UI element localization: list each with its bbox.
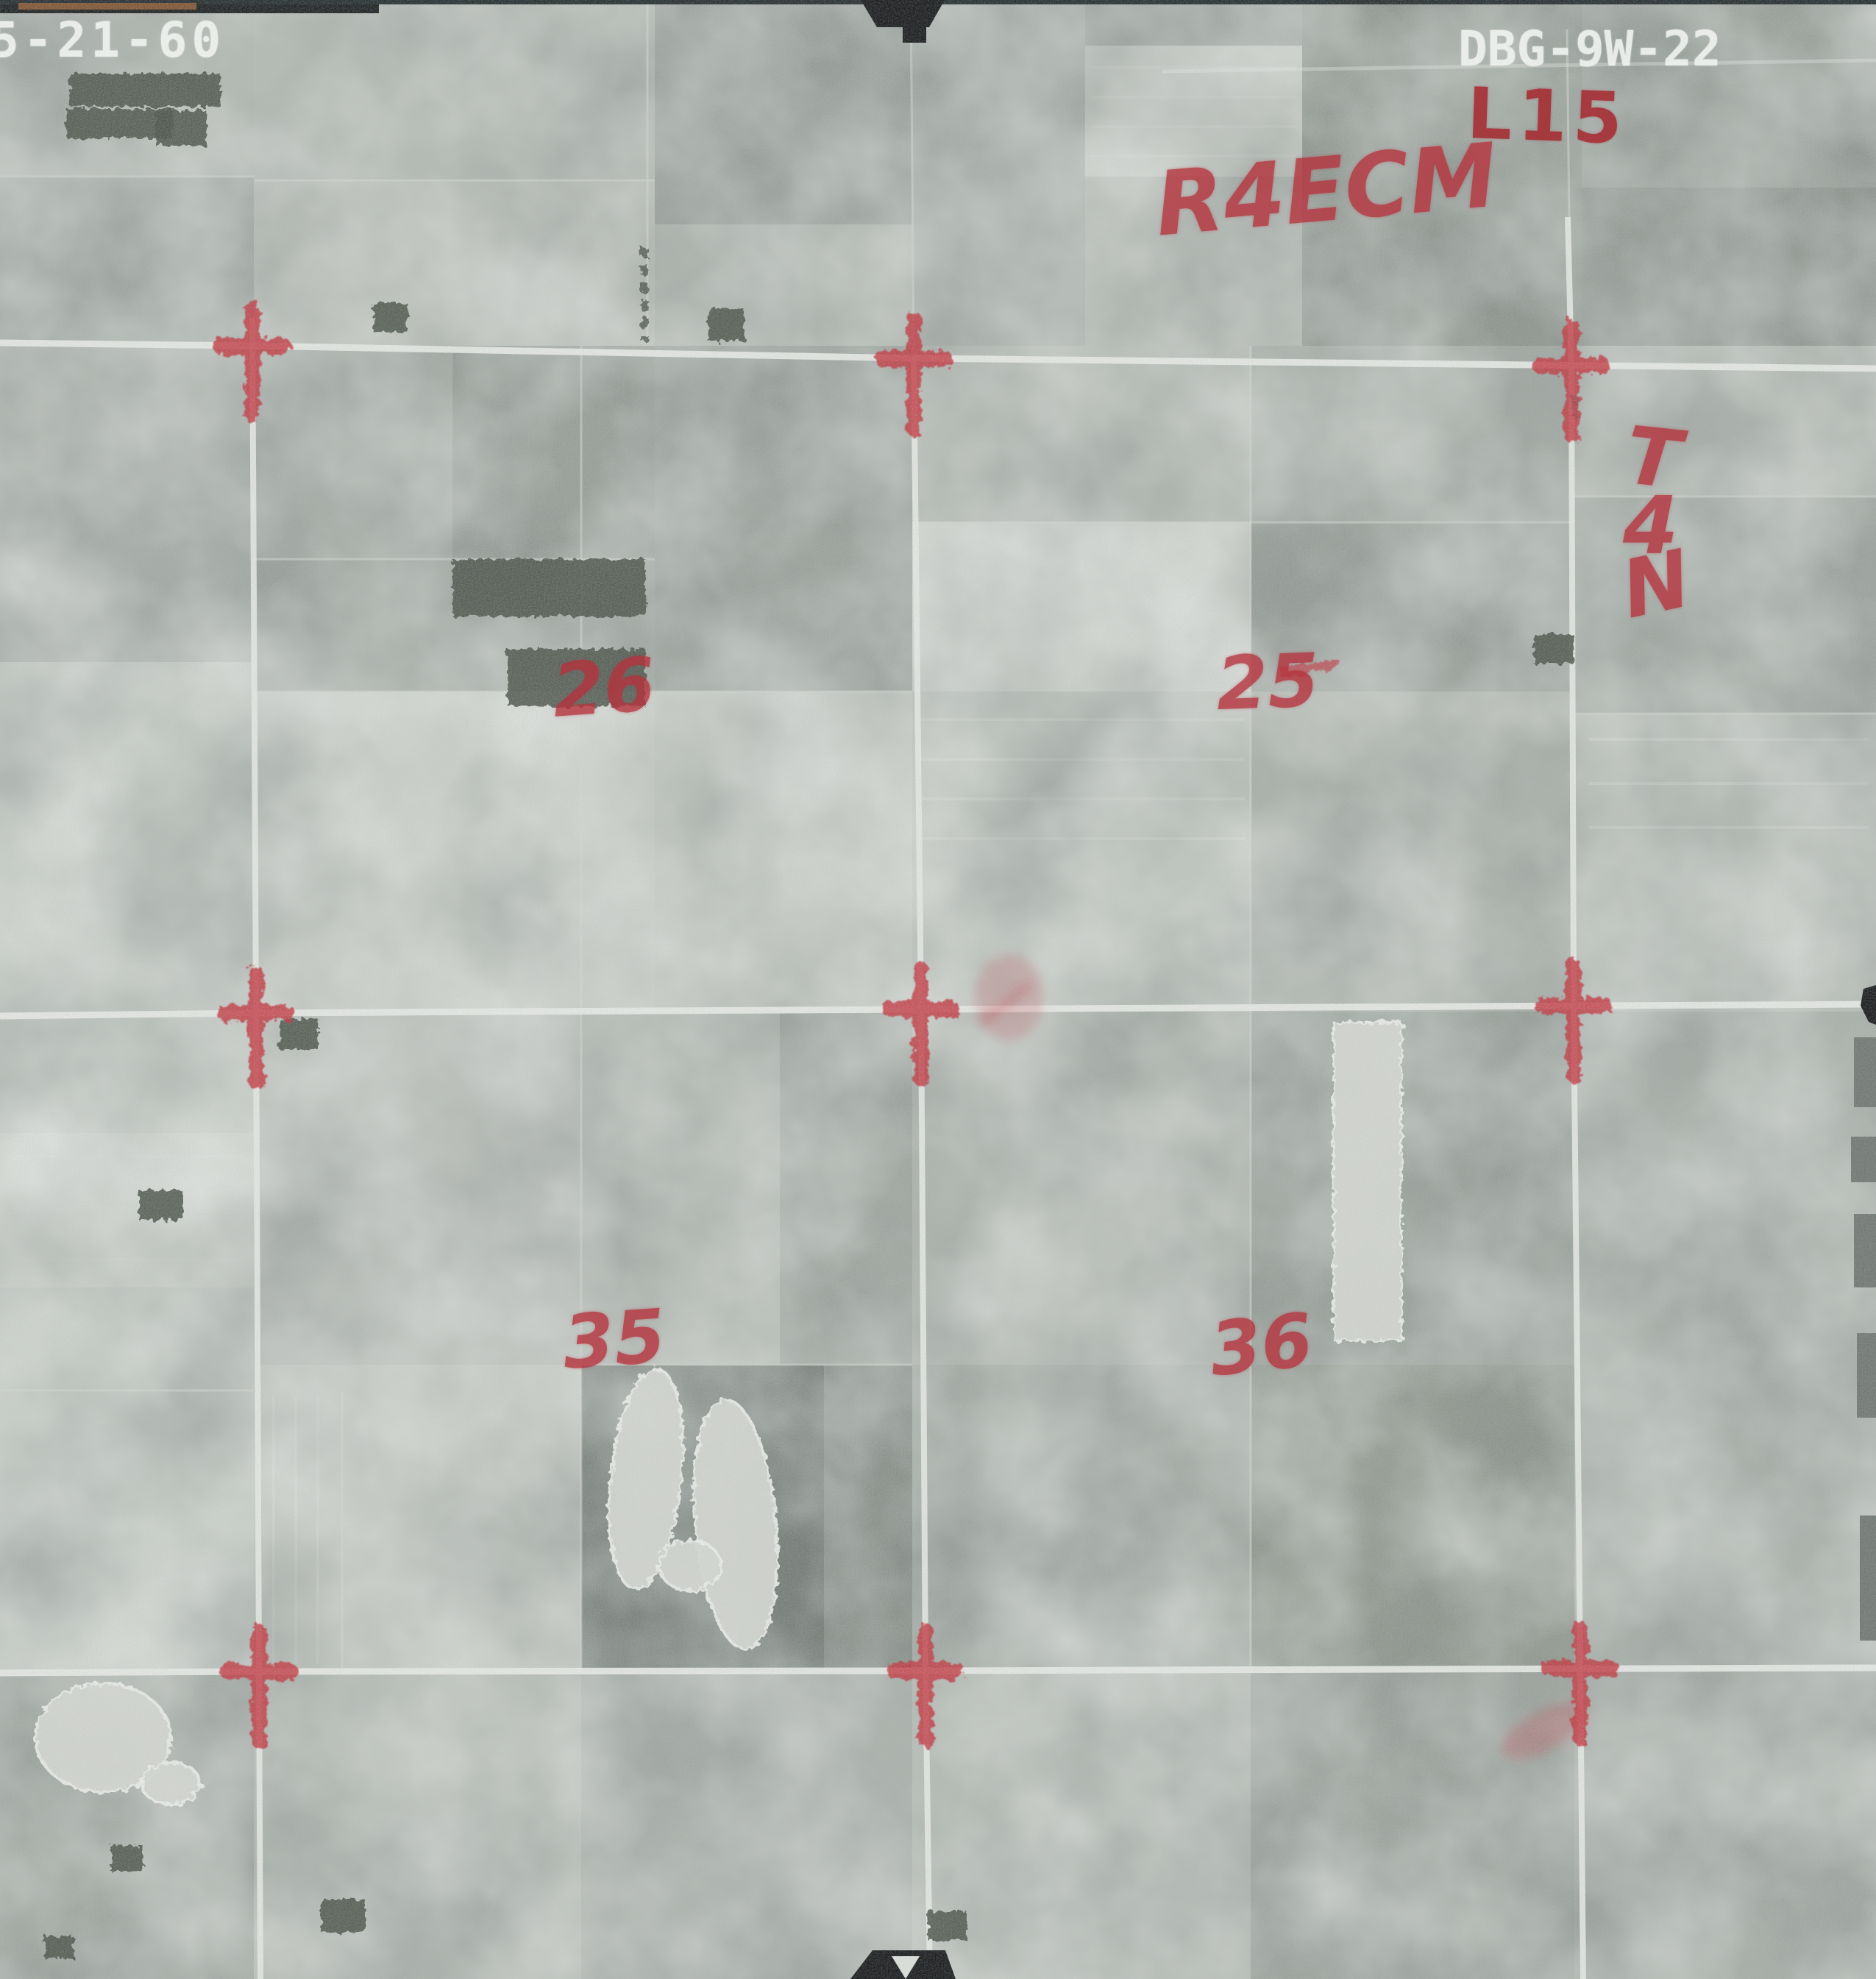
film-grain [0,0,1876,1979]
date-stamp: 5-21-60 [0,16,225,65]
section-label-36: 36 [1207,1303,1316,1387]
section-label-25: 25 [1215,644,1321,721]
aerial-photo-sheet: 5-21-60 DBG-9W-22 L15 R4ECM T 4 N 26 25 … [0,0,1876,1979]
section-label-26: 26 [550,647,658,728]
photo-id-stamp: DBG-9W-22 [1458,25,1722,74]
section-label-35: 35 [561,1299,668,1379]
aerial-photo-canvas [0,0,1876,1979]
